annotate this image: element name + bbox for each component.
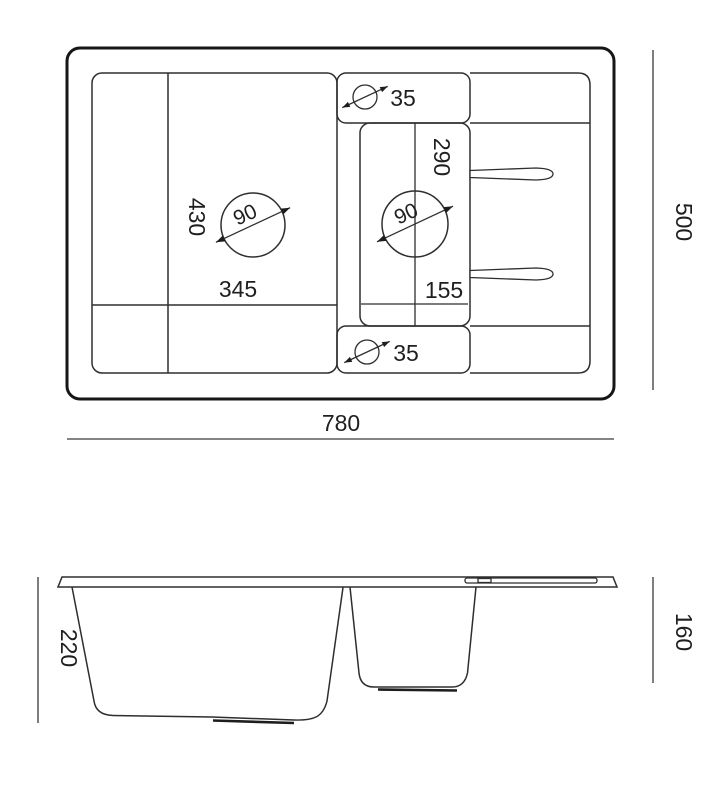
tap-hole-top-diameter-line xyxy=(342,86,387,107)
small-bowl-height-label: 160 xyxy=(671,613,697,651)
overall-depth-label: 500 xyxy=(671,203,697,241)
main-bowl-drain-lip xyxy=(213,721,294,724)
main-bowl-profile xyxy=(72,587,343,720)
main-bowl-depth-label: 430 xyxy=(184,198,210,236)
drainboard-region xyxy=(470,73,590,373)
small-bowl-offset-label: 155 xyxy=(425,277,463,303)
arrowhead-icon xyxy=(342,102,350,108)
outer-rim-outline xyxy=(67,48,614,399)
drainer-groove-bottom xyxy=(470,268,553,280)
sink-technical-drawing-page: 90 90 35 35 430 345 290 155 500 780 xyxy=(0,0,721,800)
drainer-groove-top xyxy=(470,168,553,180)
tap-hole-top-label: 35 xyxy=(390,85,416,111)
arrowhead-icon xyxy=(216,236,226,243)
tap-hole-bottom-label: 35 xyxy=(393,340,419,366)
small-bowl-drain-diameter-label: 90 xyxy=(391,199,422,230)
small-bowl-depth-label: 290 xyxy=(429,138,455,176)
arrowhead-icon xyxy=(380,86,388,92)
overall-width-label: 780 xyxy=(322,410,360,436)
arrowhead-icon xyxy=(344,357,352,363)
main-bowl-drain-diameter-label: 90 xyxy=(230,200,261,231)
arrowhead-icon xyxy=(382,341,390,347)
arrowhead-icon xyxy=(377,235,387,242)
side-view: 220 160 xyxy=(38,577,697,723)
small-bowl-profile xyxy=(350,587,476,687)
arrowhead-icon xyxy=(281,208,291,215)
top-view: 90 90 35 35 430 345 290 155 500 780 xyxy=(67,48,697,439)
main-bowl-height-label: 220 xyxy=(56,629,82,667)
drainboard-notch xyxy=(478,579,491,583)
sink-technical-drawing: 90 90 35 35 430 345 290 155 500 780 xyxy=(0,0,721,800)
main-bowl-region xyxy=(92,73,337,373)
tap-hole-bottom-diameter-line xyxy=(344,341,389,362)
small-bowl-drain-lip xyxy=(378,690,457,691)
main-bowl-width-label: 345 xyxy=(219,276,257,302)
